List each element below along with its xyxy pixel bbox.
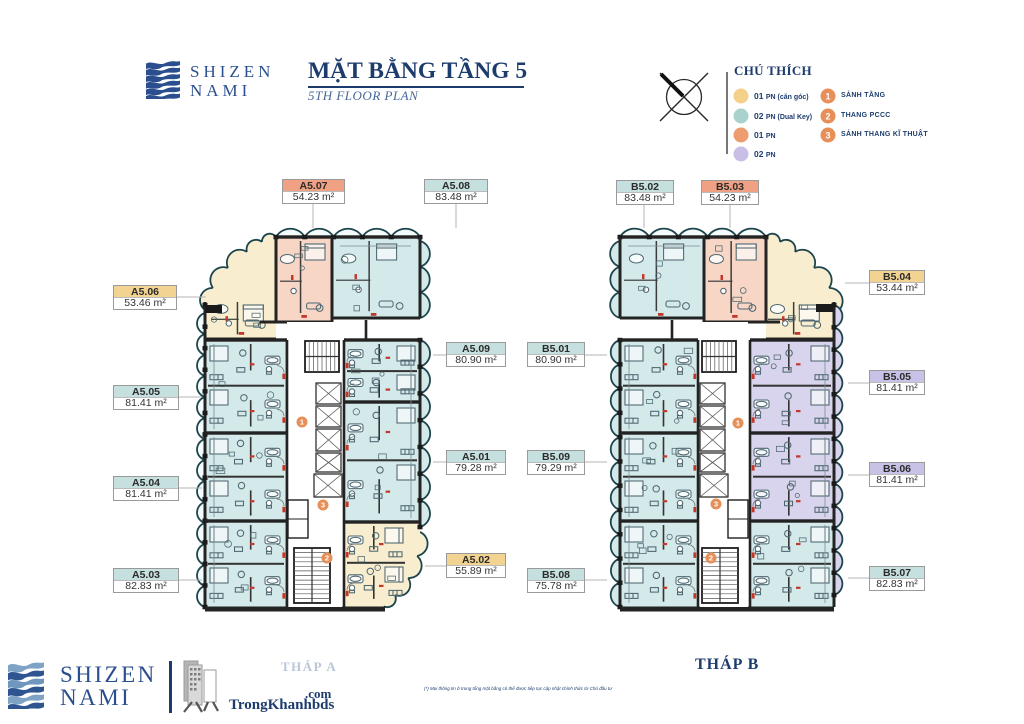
svg-text:3: 3	[825, 131, 830, 141]
svg-text:1: 1	[736, 419, 740, 428]
svg-text:3: 3	[321, 501, 325, 510]
svg-text:2: 2	[709, 554, 713, 563]
svg-text:1: 1	[300, 418, 304, 427]
svg-text:2: 2	[325, 554, 329, 563]
svg-text:2: 2	[825, 112, 830, 122]
svg-text:3: 3	[714, 500, 718, 509]
svg-text:1: 1	[825, 92, 830, 102]
